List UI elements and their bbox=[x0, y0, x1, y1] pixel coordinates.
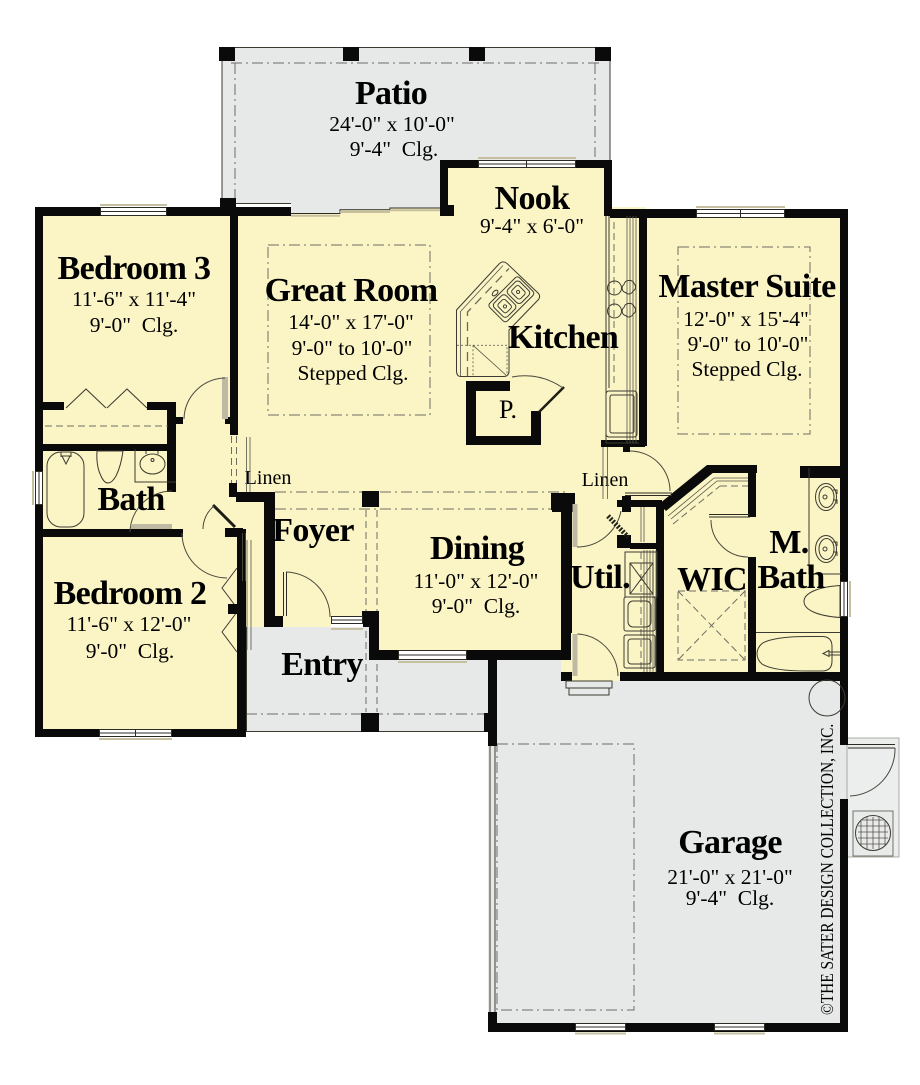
svg-text:Bedroom 2: Bedroom 2 bbox=[54, 575, 207, 612]
svg-text:Patio: Patio bbox=[355, 75, 427, 112]
svg-text:9'-0" to 10'-0": 9'-0" to 10'-0" bbox=[688, 332, 809, 356]
svg-text:24'-0" x 10'-0": 24'-0" x 10'-0" bbox=[329, 112, 455, 136]
svg-text:P.: P. bbox=[499, 395, 517, 424]
svg-text:Stepped Clg.: Stepped Clg. bbox=[691, 357, 802, 381]
svg-text:Stepped Clg.: Stepped Clg. bbox=[297, 361, 408, 385]
svg-text:14'-0" x 17'-0": 14'-0" x 17'-0" bbox=[288, 310, 414, 334]
svg-text:Bath: Bath bbox=[97, 481, 165, 518]
svg-text:Linen: Linen bbox=[582, 469, 629, 491]
svg-text:11'-6" x 12'-0": 11'-6" x 12'-0" bbox=[67, 612, 192, 636]
svg-text:Nook: Nook bbox=[495, 180, 570, 217]
svg-text:11'-6" x 11'-4": 11'-6" x 11'-4" bbox=[72, 287, 196, 311]
svg-text:Linen: Linen bbox=[245, 467, 292, 489]
svg-text:12'-0" x 15'-4": 12'-0" x 15'-4" bbox=[683, 307, 809, 331]
svg-text:Master Suite: Master Suite bbox=[659, 268, 837, 305]
svg-text:9'-0" to 10'-0": 9'-0" to 10'-0" bbox=[292, 336, 413, 360]
svg-text:11'-0" x 12'-0": 11'-0" x 12'-0" bbox=[414, 569, 539, 593]
svg-text:Bedroom 3: Bedroom 3 bbox=[58, 250, 211, 287]
svg-text:9'-0" Clg.: 9'-0" Clg. bbox=[90, 313, 179, 337]
svg-text:WIC: WIC bbox=[677, 561, 747, 598]
svg-text:M.: M. bbox=[769, 524, 808, 561]
svg-text:Garage: Garage bbox=[678, 824, 782, 861]
svg-text:Entry: Entry bbox=[281, 646, 363, 683]
svg-text:Bath: Bath bbox=[757, 559, 825, 596]
svg-text:9'-4" Clg.: 9'-4" Clg. bbox=[686, 886, 775, 910]
svg-text:Great Room: Great Room bbox=[265, 272, 438, 309]
svg-text:9'-4" x 6'-0": 9'-4" x 6'-0" bbox=[480, 214, 584, 238]
svg-text:9'-0" Clg.: 9'-0" Clg. bbox=[86, 639, 175, 663]
svg-text:9'-0" Clg.: 9'-0" Clg. bbox=[432, 594, 521, 618]
svg-text:Util.: Util. bbox=[570, 559, 630, 596]
svg-text:Dining: Dining bbox=[430, 530, 525, 567]
svg-text:Foyer: Foyer bbox=[272, 512, 354, 549]
svg-text:9'-4" Clg.: 9'-4" Clg. bbox=[350, 137, 439, 161]
svg-text:©THE SATER DESIGN COLLECTION,: ©THE SATER DESIGN COLLECTION, INC. bbox=[817, 724, 837, 1015]
svg-text:Kitchen: Kitchen bbox=[508, 319, 619, 356]
